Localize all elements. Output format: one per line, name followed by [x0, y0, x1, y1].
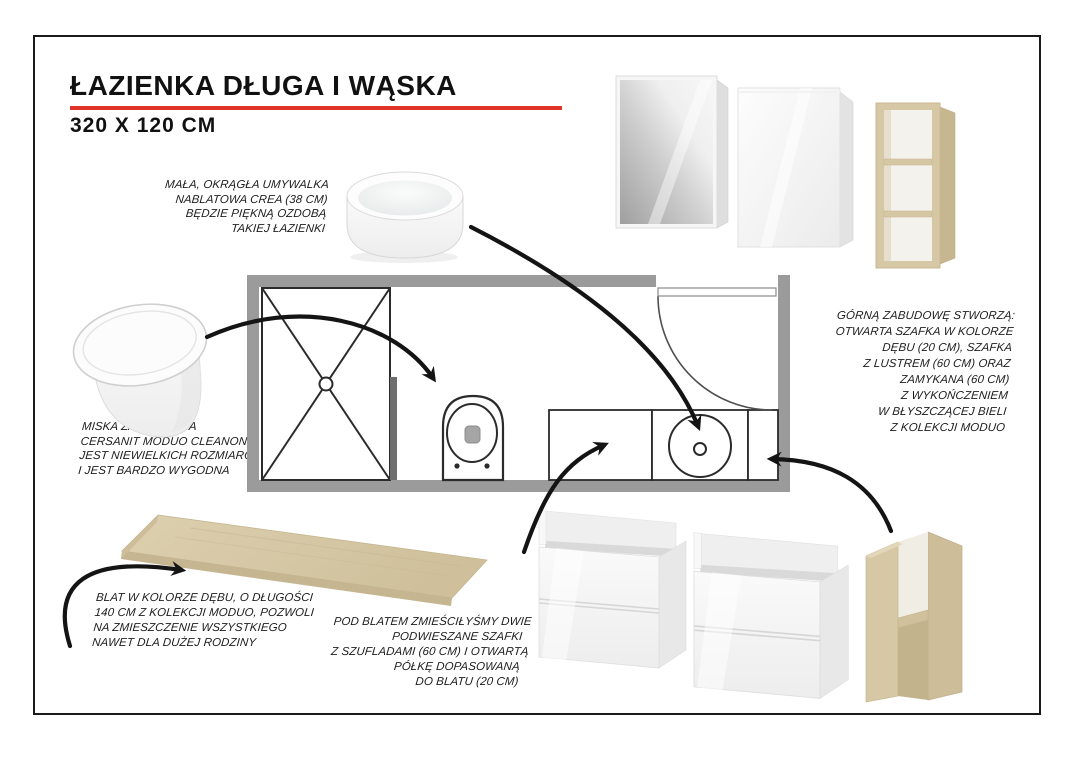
scene-svg	[0, 0, 1080, 761]
mirror-cabinet-illustration	[616, 76, 728, 228]
drawer-cabinet-1-illustration	[539, 510, 686, 668]
floor-plan	[247, 274, 790, 492]
infographic-page: ŁAZIENKA DŁUGA I WĄSKA 320 X 120 CM MAŁA…	[0, 0, 1080, 761]
partition-wall	[390, 377, 397, 480]
door-opening	[656, 274, 778, 288]
toilet-plan-icon	[443, 396, 503, 480]
drawer-cabinet-2-illustration	[694, 533, 848, 699]
arrow-to-countertop	[65, 566, 181, 646]
toilet-illustration	[68, 295, 213, 437]
oak-base-cabinet-illustration	[866, 532, 962, 702]
washbasin-illustration	[347, 172, 463, 263]
tall-white-cabinet-illustration	[738, 88, 853, 247]
countertop-illustration	[121, 515, 487, 606]
sink-drain-icon	[694, 443, 706, 455]
open-shelf-plan	[748, 410, 778, 480]
vanity-plan-icons	[549, 410, 778, 480]
oak-wall-shelf-illustration	[876, 103, 955, 268]
